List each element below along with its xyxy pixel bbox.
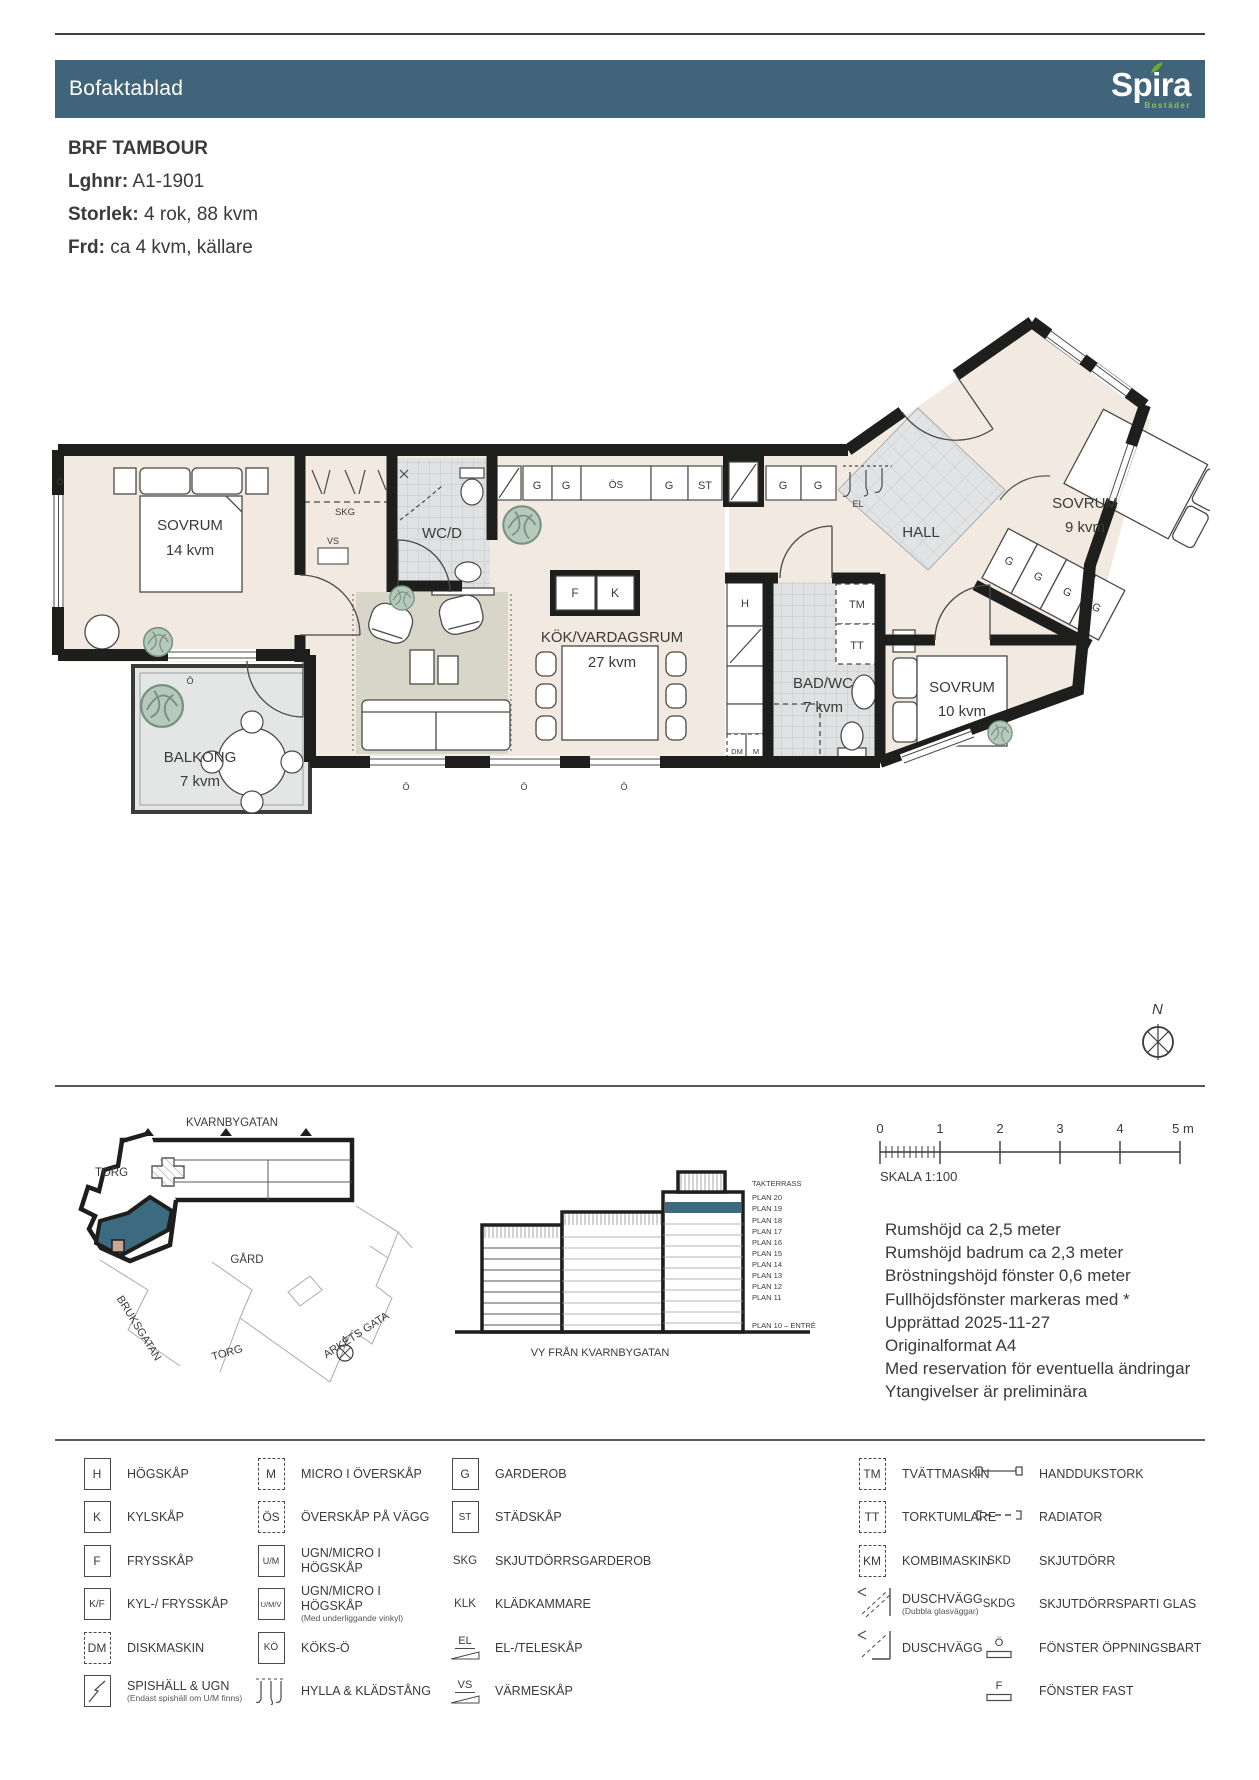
svg-text:PLAN 13: PLAN 13 — [752, 1271, 782, 1280]
svg-text:WC/D: WC/D — [422, 525, 462, 542]
svg-text:PLAN 19: PLAN 19 — [752, 1204, 782, 1213]
legend-symbol: K/F — [84, 1588, 111, 1620]
hooks-icon — [254, 1673, 288, 1710]
svg-text:PLAN 14: PLAN 14 — [752, 1260, 782, 1269]
svg-text:G: G — [562, 480, 571, 492]
svg-text:ST: ST — [698, 480, 712, 492]
svg-text:Ö: Ö — [186, 676, 193, 686]
svg-text:9 kvm: 9 kvm — [1065, 519, 1105, 536]
bofaktablad-page: Bofaktablad Spira Bostäder BRF TAMBOUR L… — [0, 0, 1259, 1780]
floor-plan: F K H DM M TM TT — [50, 240, 1210, 820]
note-line: Upprättad 2025-11-27 — [885, 1311, 1190, 1334]
header-bar: Bofaktablad Spira Bostäder — [55, 60, 1205, 118]
svg-text:Ö: Ö — [620, 782, 627, 792]
svg-text:BAD/WC: BAD/WC — [793, 675, 853, 692]
legend-symbol: H — [84, 1458, 111, 1490]
section-divider — [55, 1085, 1205, 1087]
legend-col-5: HANDDUKSTORK RADIATOR SKDSKJUTDÖRR SKDGS… — [963, 1452, 1213, 1713]
svg-text:G: G — [814, 480, 823, 492]
svg-text:SOVRUM: SOVRUM — [157, 517, 223, 534]
legend-col-2: MMICRO I ÖVERSKÅP ÖSÖVERSKÅP PÅ VÄGG U/M… — [245, 1452, 445, 1713]
legend-symbol: SKDG — [983, 1598, 1016, 1610]
scale-caption: SKALA 1:100 — [880, 1169, 957, 1184]
svg-text:0: 0 — [876, 1121, 883, 1136]
el-cabinet-icon: EL — [450, 1635, 480, 1660]
towel-rail-icon — [972, 1464, 1026, 1483]
bruksgatan-label: BRUKSGATAN — [114, 1294, 164, 1363]
openable-window-icon: Ö — [986, 1637, 1012, 1659]
fixed-window-icon: F — [986, 1680, 1012, 1702]
svg-text:2: 2 — [996, 1121, 1003, 1136]
svg-text:1: 1 — [936, 1121, 943, 1136]
elevation-caption: VY FRÅN KVARNBYGATAN — [531, 1346, 670, 1359]
svg-text:7 kvm: 7 kvm — [803, 699, 843, 716]
svg-text:4: 4 — [1116, 1121, 1123, 1136]
shower-wall-icon — [852, 1627, 892, 1668]
legend-col-1: HHÖGSKÅP KKYLSKÅP FFRYSSKÅP K/FKYL-/ FRY… — [71, 1452, 251, 1713]
svg-text:PLAN 12: PLAN 12 — [752, 1282, 782, 1291]
svg-text:M: M — [753, 747, 759, 756]
shaft-box — [729, 462, 758, 502]
legend-symbol: SKD — [987, 1555, 1011, 1567]
legend-symbol: U/M/V — [258, 1588, 285, 1620]
shower-wall-icon — [852, 1584, 892, 1625]
svg-text:BALKONG: BALKONG — [164, 749, 237, 766]
legend-col-3: GGARDEROB STSTÄDSKÅP SKGSKJUTDÖRRSGARDER… — [439, 1452, 649, 1713]
hall-wardrobes: G G — [766, 466, 836, 500]
svg-text:TAKTERRASS: TAKTERRASS — [752, 1179, 801, 1188]
kitchen-fk: F K — [550, 570, 640, 616]
top-rule — [55, 33, 1205, 35]
svg-text:SOVRUM: SOVRUM — [929, 679, 995, 696]
notes: Rumshöjd ca 2,5 meter Rumshöjd badrum ca… — [885, 1218, 1190, 1404]
svg-text:PLAN 15: PLAN 15 — [752, 1249, 782, 1258]
brand-tagline: Bostäder — [1111, 102, 1191, 110]
legend-symbol: KÖ — [258, 1632, 285, 1664]
brand-logo: Spira Bostäder — [1111, 68, 1191, 110]
svg-text:TT: TT — [850, 640, 864, 652]
svg-text:Ö: Ö — [56, 477, 63, 487]
vs-cabinet-icon: VS — [450, 1679, 480, 1704]
svg-text:14 kvm: 14 kvm — [166, 542, 214, 559]
svg-text:Ö: Ö — [520, 782, 527, 792]
svg-text:G: G — [779, 480, 788, 492]
note-line: Med reservation för eventuella ändringar — [885, 1357, 1190, 1380]
balcony — [133, 666, 310, 813]
floor-labels: TAKTERRASS PLAN 20 PLAN 19 PLAN 18 PLAN … — [752, 1179, 816, 1330]
info-row: Lghnr: A1-1901 — [68, 165, 258, 198]
scale-bar: 0 1 2 3 4 5 m SKALA 1:100 — [860, 1110, 1200, 1190]
svg-text:PLAN 10 – ENTRÉ: PLAN 10 – ENTRÉ — [752, 1321, 816, 1330]
svg-text:G: G — [665, 480, 674, 492]
svg-text:27 kvm: 27 kvm — [588, 654, 636, 671]
legend-symbol: DM — [84, 1632, 111, 1664]
info-row: Storlek: 4 rok, 88 kvm — [68, 198, 258, 231]
kitchen-run: H DM M — [727, 582, 764, 762]
gard-label: GÅRD — [230, 1253, 263, 1266]
street-label-top: KVARNBYGATAN — [186, 1117, 278, 1129]
svg-text:TM: TM — [849, 599, 865, 611]
svg-text:H: H — [741, 598, 749, 610]
note-line: Fullhöjdsfönster markeras med * — [885, 1288, 1190, 1311]
svg-text:DM: DM — [731, 747, 743, 756]
svg-text:N: N — [342, 1335, 348, 1344]
legend-symbol: G — [452, 1458, 479, 1490]
page-title: Bofaktablad — [69, 77, 183, 101]
legend-symbol: SKG — [453, 1555, 477, 1567]
stove-icon — [84, 1675, 111, 1707]
wardrobe-row: G G ÖS G ST — [497, 466, 722, 500]
svg-text:PLAN 20: PLAN 20 — [752, 1193, 782, 1202]
svg-text:N: N — [1152, 1001, 1163, 1018]
torg-label: TORG — [95, 1167, 128, 1179]
svg-text:EL: EL — [852, 499, 863, 509]
legend-symbol: ÖS — [258, 1501, 285, 1533]
svg-text:3: 3 — [1056, 1121, 1063, 1136]
highlight-floor-band — [665, 1202, 741, 1213]
svg-text:K: K — [611, 586, 619, 600]
svg-text:PLAN 11: PLAN 11 — [752, 1293, 781, 1302]
svg-text:7 kvm: 7 kvm — [180, 773, 220, 790]
legend-symbol: U/M — [258, 1545, 285, 1577]
note-line: Originalformat A4 — [885, 1334, 1190, 1357]
svg-text:VS: VS — [327, 536, 339, 546]
legend-divider — [55, 1439, 1205, 1441]
note-line: Bröstningshöjd fönster 0,6 meter — [885, 1264, 1190, 1287]
svg-text:PLAN 17: PLAN 17 — [752, 1227, 782, 1236]
leaf-icon — [1149, 61, 1165, 75]
site-plan: KVARNBYGATAN TORG GÅRD BRUKSGATAN ARKETS… — [60, 1095, 420, 1385]
svg-text:PLAN 16: PLAN 16 — [752, 1238, 782, 1247]
legend-symbol: K — [84, 1501, 111, 1533]
legend-symbol: TM — [859, 1458, 886, 1490]
svg-text:SKG: SKG — [335, 507, 355, 518]
arketsgata-label: ARKETS GATA — [321, 1310, 391, 1361]
legend-symbol: M — [258, 1458, 285, 1490]
legend-symbol: F — [84, 1545, 111, 1577]
legend-symbol: ST — [452, 1501, 479, 1533]
svg-text:SOVRUM: SOVRUM — [1052, 495, 1118, 512]
storage-marker — [112, 1240, 124, 1252]
svg-text:HALL: HALL — [902, 524, 940, 541]
legend-symbol: TT — [859, 1501, 886, 1533]
radiator-icon — [975, 1508, 1023, 1526]
legend-symbol: KM — [859, 1545, 886, 1577]
svg-text:5 m: 5 m — [1172, 1121, 1194, 1136]
building-elevation: TAKTERRASS PLAN 20 PLAN 19 PLAN 18 PLAN … — [450, 1160, 870, 1370]
svg-text:10 kvm: 10 kvm — [938, 703, 986, 720]
compass: N — [1120, 995, 1200, 1075]
svg-text:PLAN 18: PLAN 18 — [752, 1216, 782, 1225]
project-name: BRF TAMBOUR — [68, 132, 258, 165]
svg-text:Ö: Ö — [402, 782, 409, 792]
torg2-label: TORG — [210, 1343, 244, 1363]
legend-symbol: KLK — [454, 1598, 476, 1610]
note-line: Ytangivelser är preliminära — [885, 1380, 1190, 1403]
svg-text:ÖS: ÖS — [609, 479, 624, 491]
note-line: Rumshöjd ca 2,5 meter — [885, 1218, 1190, 1241]
note-line: Rumshöjd badrum ca 2,3 meter — [885, 1241, 1190, 1264]
svg-text:F: F — [571, 586, 578, 600]
svg-text:G: G — [533, 480, 542, 492]
svg-text:KÖK/VARDAGSRUM: KÖK/VARDAGSRUM — [541, 628, 683, 646]
